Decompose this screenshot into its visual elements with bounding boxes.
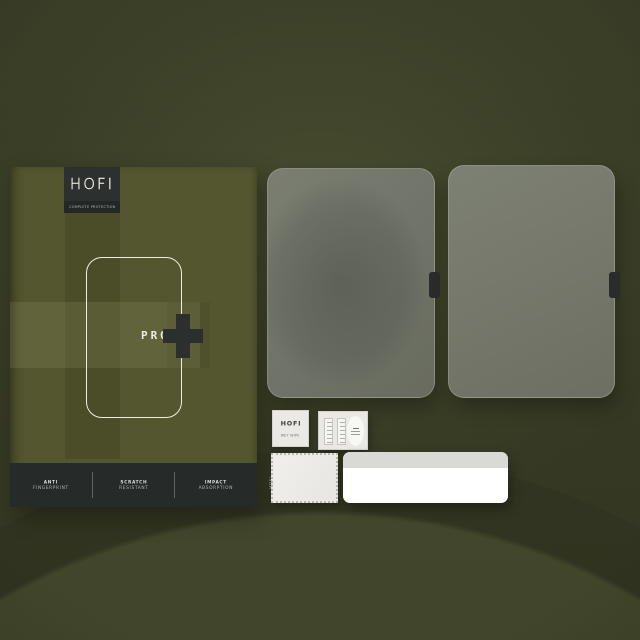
brand-tagline-strip: COMPLETE PROTECTION (64, 201, 120, 213)
feature-strip: ANTI FINGERPRINT SCRATCH RESISTANT IMPAC… (10, 463, 257, 507)
feature-line2: ABSORPTION (191, 485, 242, 491)
plus-icon (163, 314, 203, 358)
brand-logo-block: HOFI COMPLETE PROTECTION (64, 167, 120, 213)
dust-absorber-sticker (324, 418, 333, 445)
dust-absorber-sticker (337, 418, 346, 445)
cloth-brand: HOFI (269, 477, 274, 489)
pull-tab-notch (429, 272, 440, 298)
micro-text-line (353, 428, 359, 429)
installation-applicator (343, 452, 508, 503)
feature-line1: ANTI (26, 479, 77, 485)
brand-logo: HOFI (64, 175, 120, 193)
dry-wipe-window (347, 416, 364, 446)
dust-sticker-card (318, 411, 368, 450)
feature-divider (174, 472, 175, 498)
wet-wipe-sachet: HOFI WET WIPE (272, 410, 309, 447)
feature-line1: IMPACT (191, 479, 242, 485)
microfiber-cloth: HOFI (271, 453, 338, 503)
screen-protector-film-right (448, 165, 615, 398)
feature-anti-fingerprint: ANTI FINGERPRINT (26, 479, 77, 491)
feature-line2: RESISTANT (108, 485, 159, 491)
screen-protector-film-left (267, 168, 435, 398)
pull-tab-notch (609, 272, 620, 298)
microfiber-cloth-surface (274, 456, 335, 500)
plus-icon-horizontal-bar (163, 329, 203, 343)
brand-tagline: COMPLETE PROTECTION (69, 205, 115, 209)
feature-impact-absorption: IMPACT ABSORPTION (191, 479, 242, 491)
feature-line1: SCRATCH (108, 479, 159, 485)
wet-wipe-brand: HOFI (280, 419, 301, 426)
feature-scratch-resistant: SCRATCH RESISTANT (108, 479, 159, 491)
wet-wipe-label: WET WIPE (281, 433, 300, 437)
product-photo-scene: HOFI COMPLETE PROTECTION PRO ANTI FINGER… (0, 0, 640, 640)
feature-divider (92, 472, 93, 498)
micro-text-line (351, 434, 360, 435)
packaging-box: HOFI COMPLETE PROTECTION PRO ANTI FINGER… (10, 167, 257, 507)
micro-text-line (351, 431, 360, 432)
applicator-top-band (343, 452, 508, 468)
feature-line2: FINGERPRINT (26, 485, 77, 491)
